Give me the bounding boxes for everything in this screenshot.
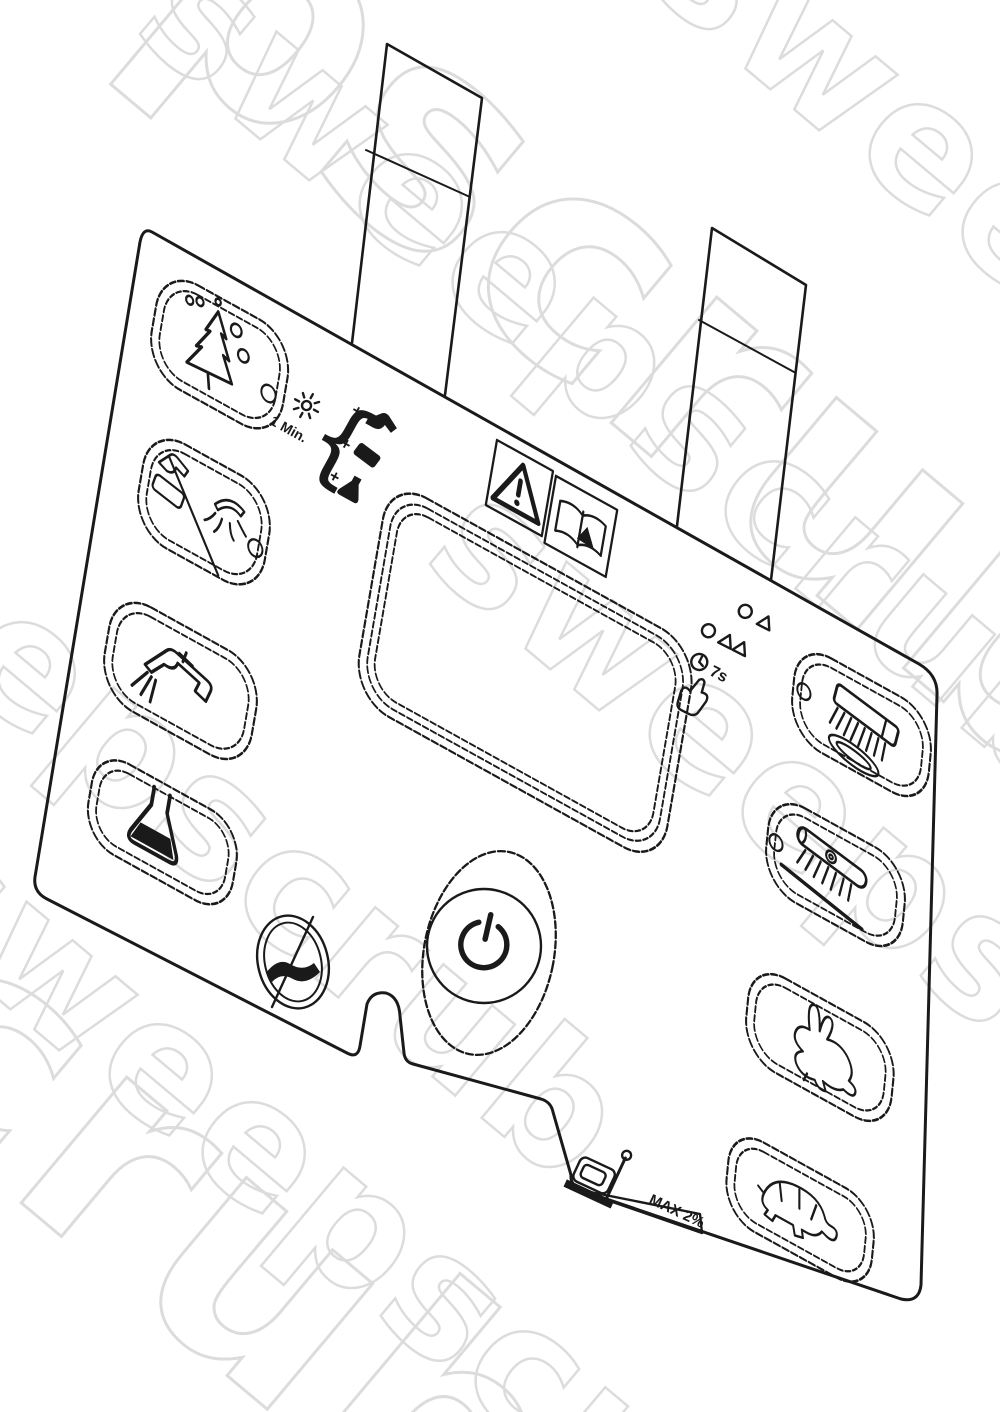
button-speed-slow bbox=[723, 1125, 877, 1295]
turtle-icon bbox=[755, 1166, 839, 1258]
ramp-wedge bbox=[575, 1189, 702, 1233]
led-indicator bbox=[247, 536, 264, 560]
dispenser-vs-spray-slash-icon bbox=[144, 446, 253, 585]
one-minute-label: 1 Min. bbox=[268, 412, 310, 445]
rabbit-icon bbox=[791, 996, 862, 1108]
one-minute-legend: 1 Min. { + + + bbox=[251, 358, 406, 512]
max-grade-label: MAX 2% bbox=[646, 1191, 707, 1231]
control-panel-line-diagram: sweepscrub sweepscrub sweepscrub sweepsc… bbox=[0, 0, 1000, 1412]
led-indicator bbox=[260, 382, 277, 406]
sun-icon bbox=[289, 388, 324, 423]
button-detergent-toggle bbox=[132, 425, 276, 599]
pine-tree-bubbles-icon bbox=[174, 283, 255, 407]
diagram-page: { "watermark": { "text": "sweepscrub", "… bbox=[0, 0, 1000, 1412]
